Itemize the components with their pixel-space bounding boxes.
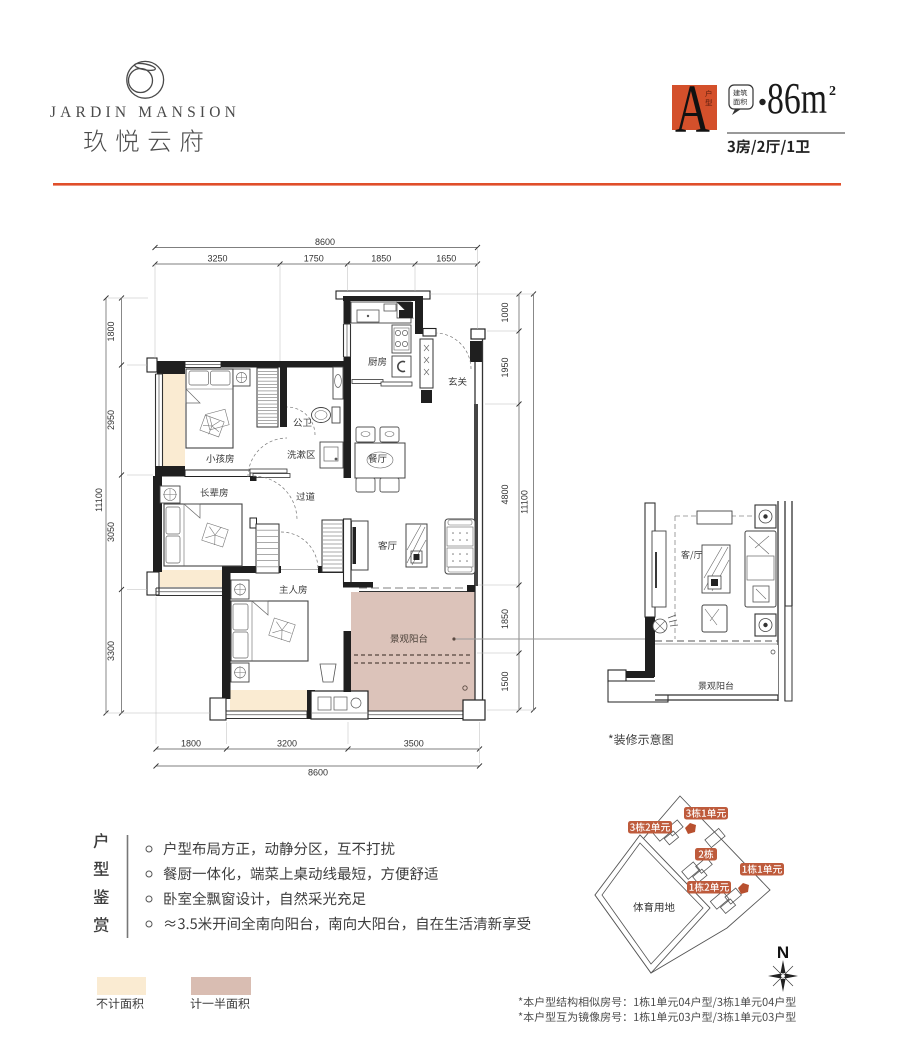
svg-text:1850: 1850 (500, 609, 510, 629)
svg-text:86m: 86m (767, 74, 827, 123)
svg-text:2950: 2950 (106, 410, 116, 430)
svg-text:3500: 3500 (404, 739, 424, 749)
svg-text:11100: 11100 (520, 490, 530, 514)
svg-text:1500: 1500 (500, 671, 510, 691)
svg-text:3250: 3250 (207, 254, 227, 264)
svg-text:2: 2 (829, 84, 836, 99)
svg-text:1950: 1950 (500, 357, 510, 377)
svg-text:1650: 1650 (436, 254, 456, 264)
svg-text:1800: 1800 (181, 739, 201, 749)
svg-text:8600: 8600 (315, 237, 335, 247)
svg-text:1000: 1000 (500, 302, 510, 322)
svg-text:3300: 3300 (106, 641, 116, 661)
svg-text:1800: 1800 (106, 321, 116, 341)
svg-text:1750: 1750 (304, 254, 324, 264)
svg-text:JARDIN MANSION: JARDIN MANSION (50, 104, 240, 121)
svg-text:3050: 3050 (106, 522, 116, 542)
svg-text:3200: 3200 (277, 739, 297, 749)
svg-text:11100: 11100 (94, 488, 104, 512)
svg-text:N: N (777, 943, 789, 962)
svg-text:8600: 8600 (308, 768, 328, 778)
svg-text:4800: 4800 (500, 484, 510, 504)
svg-text:A: A (675, 70, 710, 146)
svg-text:1850: 1850 (371, 254, 391, 264)
